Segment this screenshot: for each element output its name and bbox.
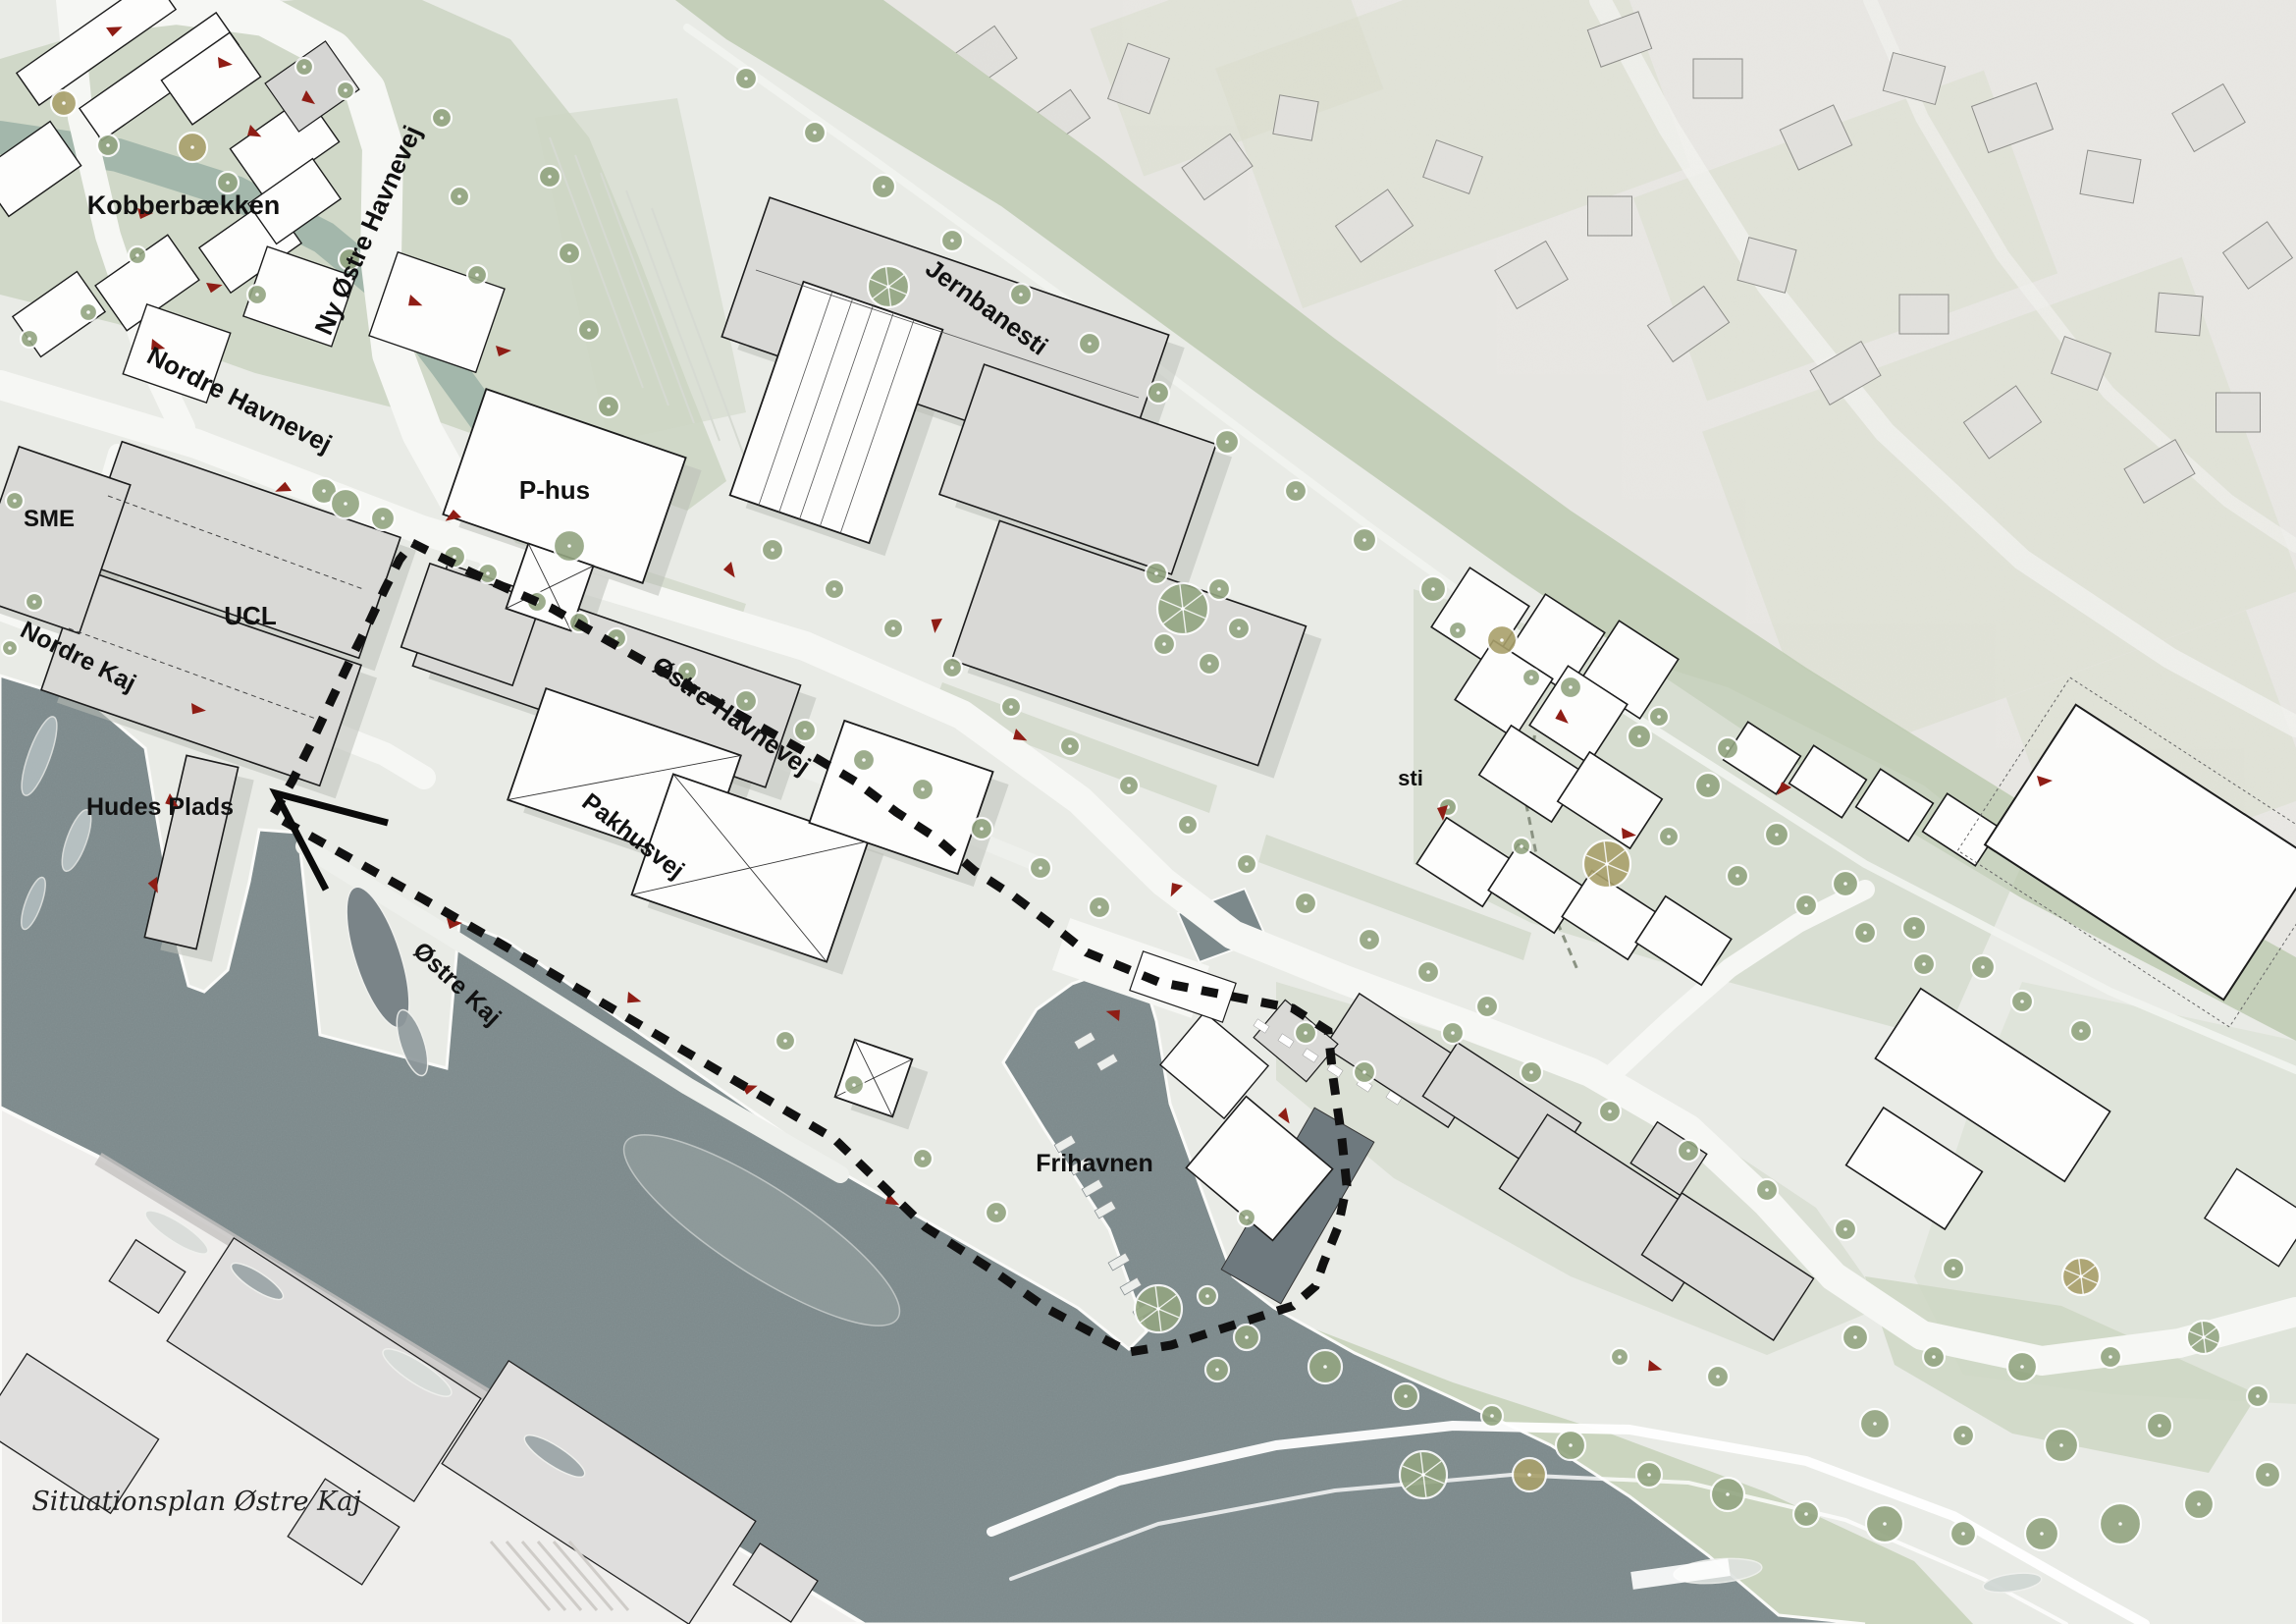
label-sti: sti bbox=[1398, 766, 1423, 790]
label-sme: SME bbox=[24, 506, 75, 532]
label-ucl: UCL bbox=[224, 601, 277, 630]
label-kobberbaekken: Kobberbækken bbox=[87, 190, 281, 220]
label-caption: Situationsplan Østre Kaj bbox=[31, 1487, 360, 1517]
label-frihavnen: Frihavnen bbox=[1036, 1150, 1152, 1177]
label-p-hus: P-hus bbox=[519, 475, 590, 505]
label-hudes-plads: Hudes Plads bbox=[86, 793, 234, 821]
map-canvas: Kobberbækken Ny Østre Havnevej Jernbanes… bbox=[0, 0, 2296, 1624]
site-plan: Kobberbækken Ny Østre Havnevej Jernbanes… bbox=[0, 0, 2296, 1624]
